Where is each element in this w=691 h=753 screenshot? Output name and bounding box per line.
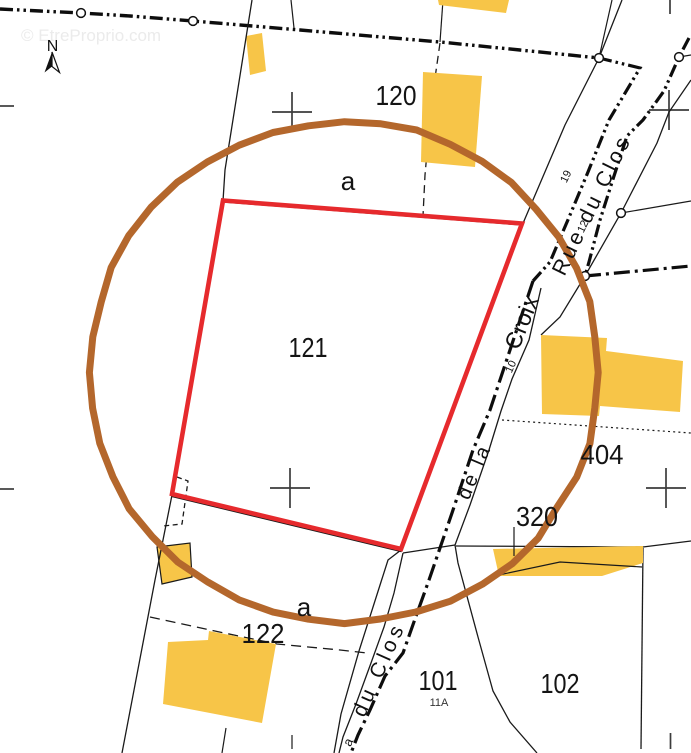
svg-text:© EtreProprio.com: © EtreProprio.com [21,26,161,45]
svg-text:11A: 11A [430,697,449,709]
svg-text:122: 122 [242,618,285,649]
svg-text:120: 120 [376,80,417,111]
svg-text:404: 404 [581,439,624,470]
svg-text:320: 320 [516,501,558,532]
svg-text:a: a [297,592,312,622]
svg-text:101: 101 [419,665,458,696]
svg-text:a: a [341,166,356,196]
svg-text:102: 102 [541,668,580,699]
svg-text:121: 121 [289,332,328,363]
